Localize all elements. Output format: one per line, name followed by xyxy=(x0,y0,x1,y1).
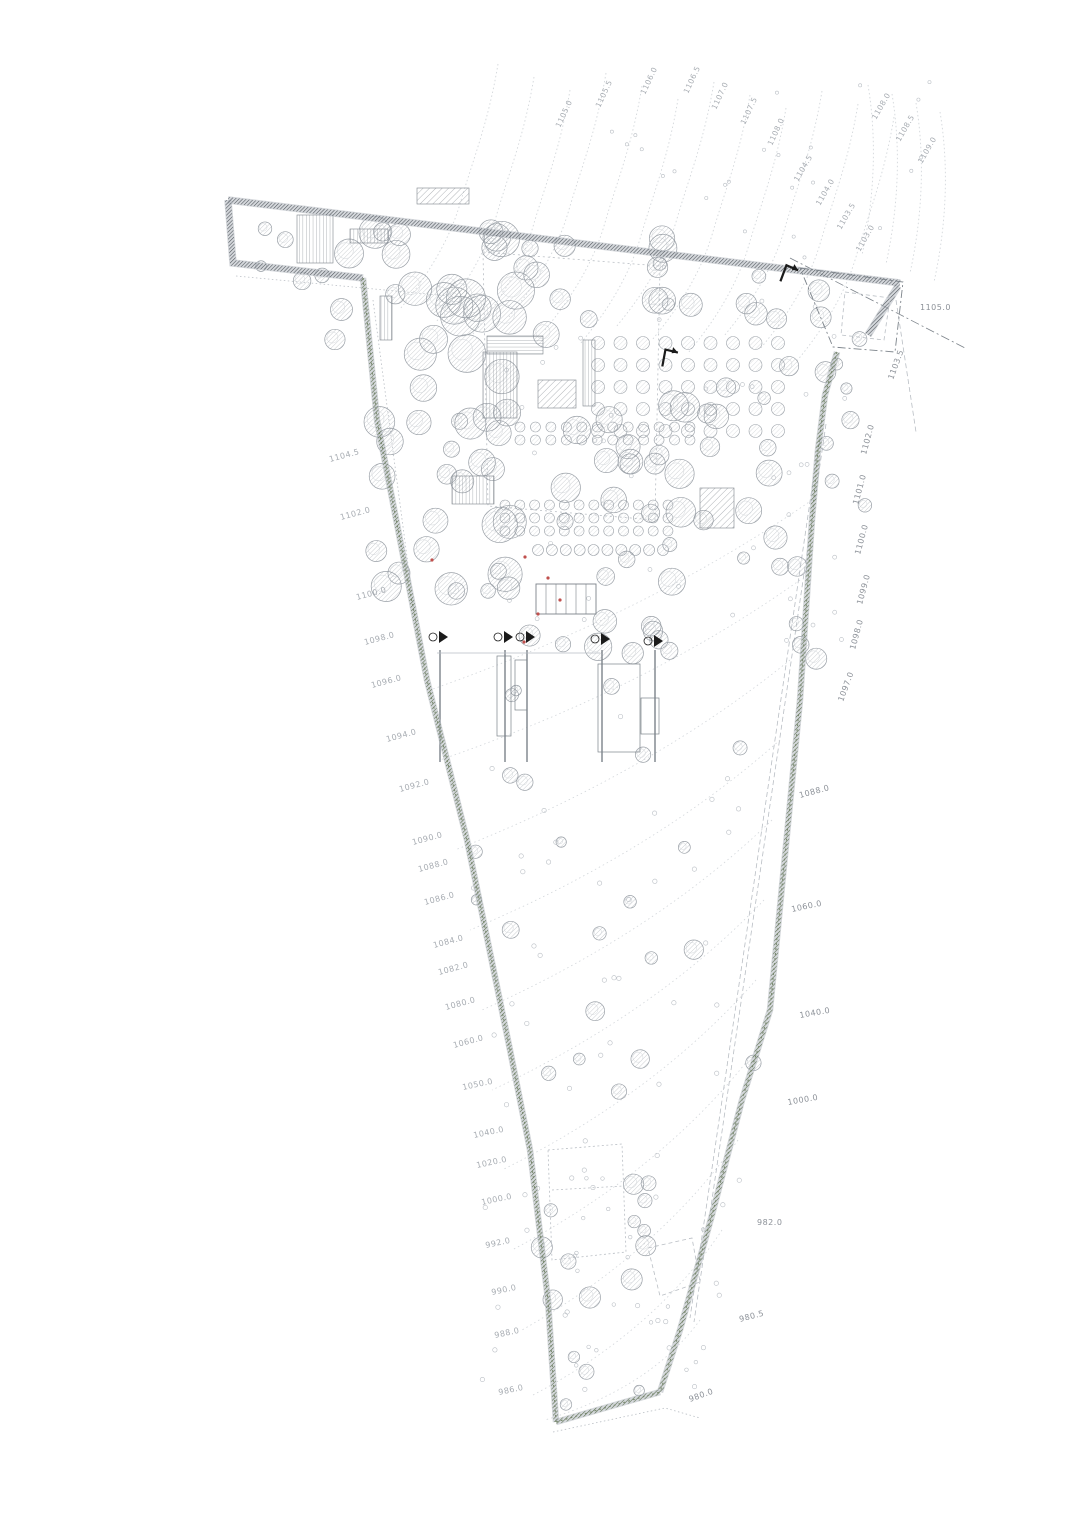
section-marker-circle xyxy=(494,633,502,641)
elevation-label: 1092.0 xyxy=(398,777,430,794)
elevation-label: 992.0 xyxy=(485,1236,512,1250)
site-plan-drawing: 1104.51102.01100.01098.01096.01094.01092… xyxy=(0,0,1080,1526)
elevation-label: 1104.5 xyxy=(328,447,360,464)
elevation-label: 990.0 xyxy=(491,1283,518,1297)
elevation-label: 1080.0 xyxy=(444,995,476,1012)
section-marker-circle xyxy=(429,633,437,641)
elevation-label: 1102.0 xyxy=(859,423,876,455)
elevation-label: 1108.0 xyxy=(766,117,787,147)
elevation-label: 1098.0 xyxy=(848,618,865,650)
elevation-label: 986.0 xyxy=(498,1383,525,1397)
elevation-label: 1109.0 xyxy=(916,135,938,165)
section-marker-arrow-icon xyxy=(504,631,513,643)
elevation-label: 1040.0 xyxy=(799,1006,831,1020)
elevation-label: 1103.0 xyxy=(854,223,876,253)
elevation-label: 1107.0 xyxy=(710,81,731,111)
elevation-label: 1103.5 xyxy=(835,201,857,231)
elevation-label: 1096.0 xyxy=(370,673,402,690)
elevation-label: 1097.0 xyxy=(836,670,855,702)
elevation-label: 980.0 xyxy=(688,1387,715,1404)
site-plan-svg: 1104.51102.01100.01098.01096.01094.01092… xyxy=(0,0,1080,1526)
elevation-label: 1099.0 xyxy=(855,573,872,605)
elevation-label: 1084.0 xyxy=(432,933,464,950)
elevation-label: 1050.0 xyxy=(462,1077,494,1092)
elevation-label: 1060.0 xyxy=(791,899,823,914)
elevation-label: 1104.5 xyxy=(792,153,814,183)
elevation-label: 1105.5 xyxy=(594,79,615,109)
structures xyxy=(297,188,734,1296)
elevation-label: 1108.0 xyxy=(870,91,892,121)
elevation-label: 1105.0 xyxy=(554,99,575,129)
elevation-label: 1100.0 xyxy=(853,523,870,555)
elevation-label: 1090.0 xyxy=(411,830,443,847)
elevation-label: 1106.5 xyxy=(682,65,703,95)
contour-lines-body xyxy=(430,500,812,1420)
elevation-label: 1098.0 xyxy=(363,630,395,647)
elevation-label: 1107.5 xyxy=(739,96,760,126)
elevation-label: 1060.0 xyxy=(452,1033,484,1050)
elevation-label: 988.0 xyxy=(494,1326,521,1340)
elevation-label: 1020.0 xyxy=(476,1155,508,1170)
elevation-label: 1088.0 xyxy=(798,783,830,800)
elevation-label: 1104.0 xyxy=(814,177,836,207)
elevation-label: 1103.5 xyxy=(886,348,905,380)
elevation-label: 1082.0 xyxy=(437,960,469,977)
elevation-label: 1094.0 xyxy=(385,727,417,744)
elevation-label: 1000.0 xyxy=(787,1093,819,1107)
elevation-label: 1105.0 xyxy=(920,303,951,312)
elevation-label: 1040.0 xyxy=(473,1125,505,1140)
orchard-rows xyxy=(500,337,785,556)
section-marker-arrow-icon xyxy=(439,631,448,643)
elevation-label: 1088.0 xyxy=(417,857,449,874)
elevation-label: 1102.0 xyxy=(339,505,371,522)
elevation-label: 1086.0 xyxy=(423,890,455,907)
elevation-label: 1106.0 xyxy=(639,66,660,96)
elevation-label: 1000.0 xyxy=(481,1192,513,1207)
elevation-label: 980.5 xyxy=(738,1309,765,1324)
elevation-label: 982.0 xyxy=(757,1218,782,1227)
elevation-label: 1108.5 xyxy=(894,113,916,143)
